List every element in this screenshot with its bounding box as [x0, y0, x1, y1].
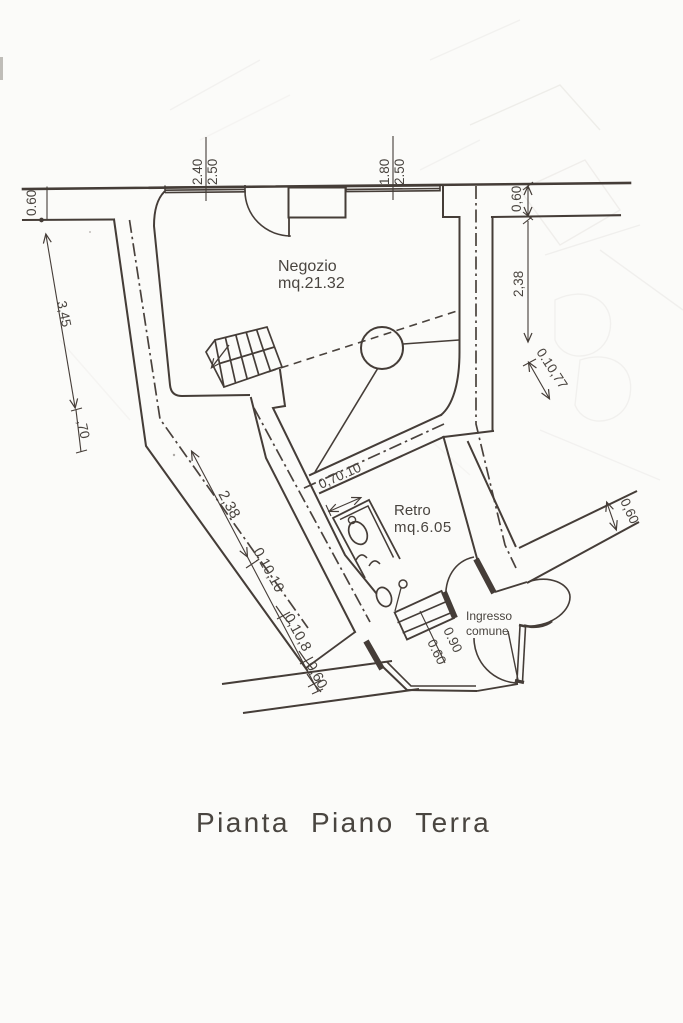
svg-text:0,60: 0,60: [509, 186, 524, 212]
svg-text:mq.6.05: mq.6.05: [394, 519, 452, 536]
svg-text:3,45: 3,45: [54, 300, 74, 329]
svg-text:Pianta Piano Terra: Pianta Piano Terra: [196, 807, 491, 838]
svg-text:0,10,8: 0,10,8: [281, 611, 315, 654]
svg-text:0,60: 0,60: [303, 659, 331, 691]
svg-text:0,70.10: 0,70.10: [316, 460, 363, 492]
svg-text:0.60: 0.60: [24, 190, 39, 216]
svg-text:comune: comune: [466, 624, 509, 638]
svg-text:2,38: 2,38: [215, 488, 244, 522]
svg-text:Ingresso: Ingresso: [466, 609, 512, 623]
svg-text:2.40: 2.40: [190, 159, 205, 185]
svg-text:Negozio: Negozio: [278, 258, 337, 275]
svg-text:2.50: 2.50: [392, 159, 407, 185]
svg-text:0,10,10: 0,10,10: [250, 545, 287, 595]
svg-text:1.80: 1.80: [377, 159, 392, 185]
svg-text:2,38: 2,38: [511, 271, 526, 297]
svg-text:2.50: 2.50: [205, 159, 220, 185]
svg-text:Retro: Retro: [394, 502, 431, 519]
svg-text:,70: ,70: [74, 419, 93, 440]
svg-text:mq.21.32: mq.21.32: [278, 275, 345, 292]
